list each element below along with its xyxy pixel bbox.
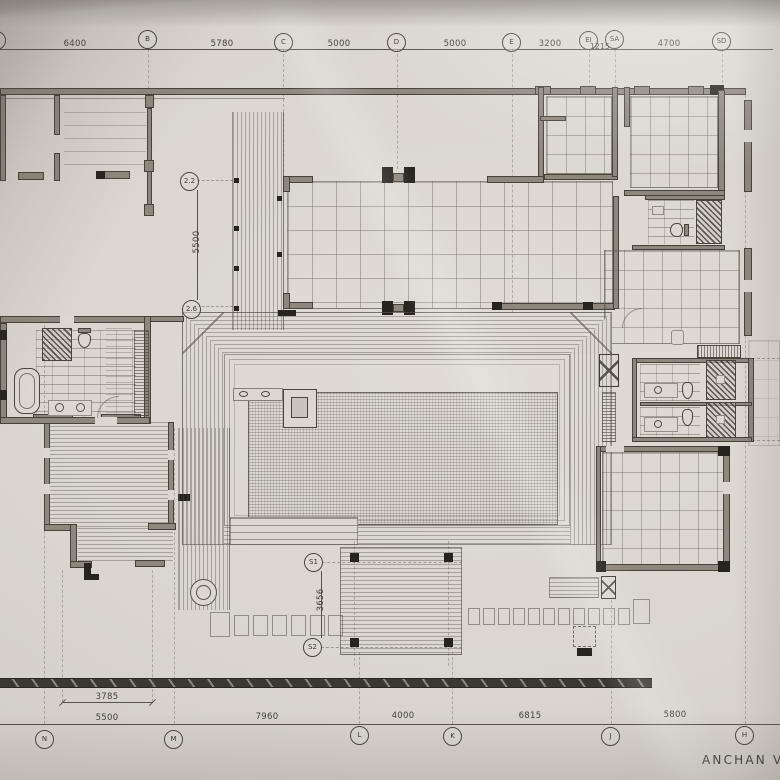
- deck-marker: [277, 196, 282, 201]
- dimension-label: 5000: [433, 39, 477, 49]
- sink: [76, 403, 85, 412]
- deck-marker: [277, 252, 282, 257]
- column: [718, 446, 730, 456]
- sink: [654, 386, 662, 394]
- deck-marker: [234, 178, 239, 183]
- dimension-label: 6400: [53, 39, 97, 49]
- stepping-stone: [513, 608, 525, 625]
- sala-column: [350, 638, 359, 647]
- column: [492, 302, 502, 310]
- column: [144, 204, 154, 216]
- sala-column: [444, 553, 453, 562]
- stepping-stone: [558, 608, 570, 625]
- stepping-stone: [234, 615, 249, 636]
- leader-line: [322, 562, 462, 563]
- dimension-label: 3785: [85, 692, 129, 702]
- dimension-label: 7960: [245, 712, 289, 722]
- wall-segment: [283, 293, 290, 309]
- grid-bubble-J: J: [601, 727, 620, 746]
- column: [583, 302, 593, 310]
- wall-segment: [718, 90, 725, 192]
- boundary-wall: [0, 678, 652, 688]
- wall-segment: [612, 87, 618, 177]
- living-room-tile-floor: [287, 181, 613, 309]
- grid-bubble-B: B: [138, 30, 157, 49]
- dimension-label-vertical: 3656: [316, 585, 326, 615]
- wall-right-segment: [744, 100, 752, 192]
- grid-bubble-N: N: [35, 730, 54, 749]
- stepping-stone: [210, 612, 230, 637]
- leader-line: [197, 180, 233, 181]
- grid-construction-line: [722, 49, 723, 88]
- level-bubble-2-2: 2.2: [180, 172, 199, 191]
- dimension-label: 3200: [528, 39, 572, 49]
- grid-construction-line: [152, 570, 153, 702]
- column: [580, 86, 596, 95]
- dimension-line: [62, 702, 153, 703]
- wall-partition: [54, 153, 60, 181]
- wall-line: [0, 98, 285, 99]
- wall-left-upper: [0, 95, 6, 181]
- wall-segment: [596, 564, 730, 571]
- wall-segment: [150, 316, 184, 322]
- leader-line: [321, 647, 462, 648]
- wall-segment: [393, 304, 404, 312]
- closet-shelf: [716, 375, 725, 384]
- stepping-stone: [272, 615, 287, 636]
- wall-opening: [60, 316, 74, 323]
- pool-steps: [230, 517, 358, 545]
- wall-segment: [283, 176, 290, 192]
- stepping-stone: [310, 615, 325, 636]
- stepping-stone: [528, 608, 540, 625]
- wall-segment: [0, 316, 150, 323]
- grid-construction-line: [148, 49, 149, 89]
- wall-segment: [44, 524, 72, 531]
- wall-segment: [147, 108, 152, 208]
- dimension-label-vertical: 5500: [192, 227, 202, 257]
- door-opening: [606, 446, 624, 452]
- bathroom1-closet: [696, 200, 722, 244]
- wall-opening: [723, 482, 730, 494]
- stepping-stone: [588, 608, 600, 625]
- stepping-stone: [291, 615, 306, 636]
- wall-segment: [624, 87, 630, 127]
- stepping-stone: [498, 608, 510, 625]
- wardrobe: [697, 345, 741, 358]
- grid-bubble-L: L: [350, 726, 369, 745]
- wall-segment: [487, 176, 544, 183]
- level-bubble-2-6: 2.6: [182, 300, 201, 319]
- sink: [652, 206, 664, 215]
- stepping-stone: [633, 599, 650, 624]
- wall-opening: [44, 484, 50, 494]
- wall-segment: [540, 116, 566, 121]
- leader-line: [197, 306, 233, 307]
- wall-segment: [168, 422, 174, 524]
- wall-partition: [54, 95, 60, 135]
- stepping-stone: [618, 608, 630, 625]
- pool-jet: [261, 391, 270, 397]
- wall-segment: [44, 420, 50, 528]
- basin: [671, 330, 684, 345]
- stepping-stone: [603, 608, 615, 625]
- column: [0, 330, 7, 340]
- wall-segment: [135, 560, 165, 567]
- wall-segment: [544, 174, 618, 180]
- stepping-stone: [253, 615, 268, 636]
- dimension-label: 6815: [508, 711, 552, 721]
- grid-bubble-H: H: [735, 726, 754, 745]
- bedroom1-wood-floor: [50, 422, 173, 528]
- sala-column: [350, 553, 359, 562]
- wall-opening: [168, 490, 174, 500]
- column: [144, 160, 154, 172]
- column: [634, 86, 650, 95]
- grid-line-top: [0, 49, 773, 50]
- stepping-stone: [573, 608, 585, 625]
- sala-column: [444, 638, 453, 647]
- wall-segment: [492, 303, 615, 310]
- bedroom4-tile-floor: [630, 96, 718, 188]
- deck-marker: [234, 306, 239, 311]
- wall-segment: [18, 172, 44, 180]
- deck-column: [278, 310, 296, 316]
- deck-marker: [234, 226, 239, 231]
- dimension-label: 4000: [381, 711, 425, 721]
- wall-right-segment: [744, 248, 752, 336]
- column: [96, 171, 105, 179]
- wall-segment: [538, 87, 544, 177]
- bathtub-inner: [19, 373, 35, 409]
- grid-line-bottom: [0, 724, 780, 725]
- sink: [55, 403, 64, 412]
- grid-construction-line: [589, 49, 590, 88]
- column: [718, 561, 730, 572]
- wall-opening: [44, 448, 50, 458]
- pool-jet: [239, 391, 248, 397]
- toilet: [670, 223, 683, 237]
- hallway-wood-floor: [106, 328, 132, 416]
- planter-pot-inner: [196, 585, 211, 600]
- column: [596, 561, 606, 572]
- porch-column: [601, 576, 616, 599]
- bedroom5-tile-floor: [602, 452, 724, 566]
- garage-floor: [64, 112, 146, 168]
- sheet-title: ANCHAN VI: [702, 753, 780, 767]
- wall-segment: [632, 358, 637, 442]
- entry-column: [382, 167, 393, 183]
- deck-marker: [234, 266, 239, 271]
- floor-plan-photo: B C D E EI SA SD 6400 5780 5000 5000 320…: [0, 0, 780, 780]
- pool-skimmer: [291, 397, 308, 418]
- wall-opening: [168, 450, 174, 460]
- wall-segment: [393, 173, 404, 182]
- bedroom3-tile-floor: [546, 96, 612, 174]
- stepping-stone: [483, 608, 495, 625]
- wardrobe: [134, 330, 149, 416]
- dimension-label: 5800: [653, 710, 697, 720]
- porch-deck: [549, 577, 599, 598]
- wall-segment: [596, 446, 601, 570]
- wall-segment: [723, 449, 730, 569]
- column: [84, 574, 99, 580]
- dimension-label: 5780: [200, 39, 244, 49]
- bedroom1-wood-floor: [78, 528, 173, 564]
- stepping-stone: [543, 608, 555, 625]
- closet-shelf: [716, 415, 725, 424]
- dimension-label: 5500: [85, 713, 129, 723]
- grid-bubble-M: M: [164, 730, 183, 749]
- column: [688, 86, 704, 95]
- column-bubble-s2: S2: [303, 638, 322, 657]
- grid-bubble-K: K: [443, 727, 462, 746]
- wall-segment: [148, 523, 176, 530]
- stepping-stone: [468, 608, 480, 625]
- dimension-label: 4700: [647, 39, 691, 49]
- column: [145, 95, 154, 108]
- column: [0, 390, 7, 400]
- entry-column: [404, 167, 415, 183]
- wall-opening: [744, 130, 752, 142]
- shower: [42, 328, 72, 361]
- grid-bubble-top-partial: [0, 31, 6, 50]
- wall-opening: [744, 280, 752, 292]
- toilet-tank: [684, 224, 689, 236]
- grid-construction-line: [397, 49, 398, 169]
- terrace-tile-floor: [748, 340, 780, 446]
- dimension-label: 5000: [317, 39, 361, 49]
- stepping-stone: [328, 615, 343, 636]
- wall-segment: [0, 417, 150, 424]
- sink: [654, 420, 662, 428]
- column-bubble-s1: S1: [304, 553, 323, 572]
- grid-construction-line: [359, 652, 360, 724]
- utility-marker-box: [573, 626, 596, 647]
- grid-construction-line: [615, 49, 616, 88]
- grid-construction-line: [62, 570, 63, 702]
- grid-construction-line: [452, 652, 453, 724]
- door-opening: [95, 417, 117, 424]
- deck-walkway-upper: [232, 112, 284, 330]
- utility-marker: [577, 648, 592, 656]
